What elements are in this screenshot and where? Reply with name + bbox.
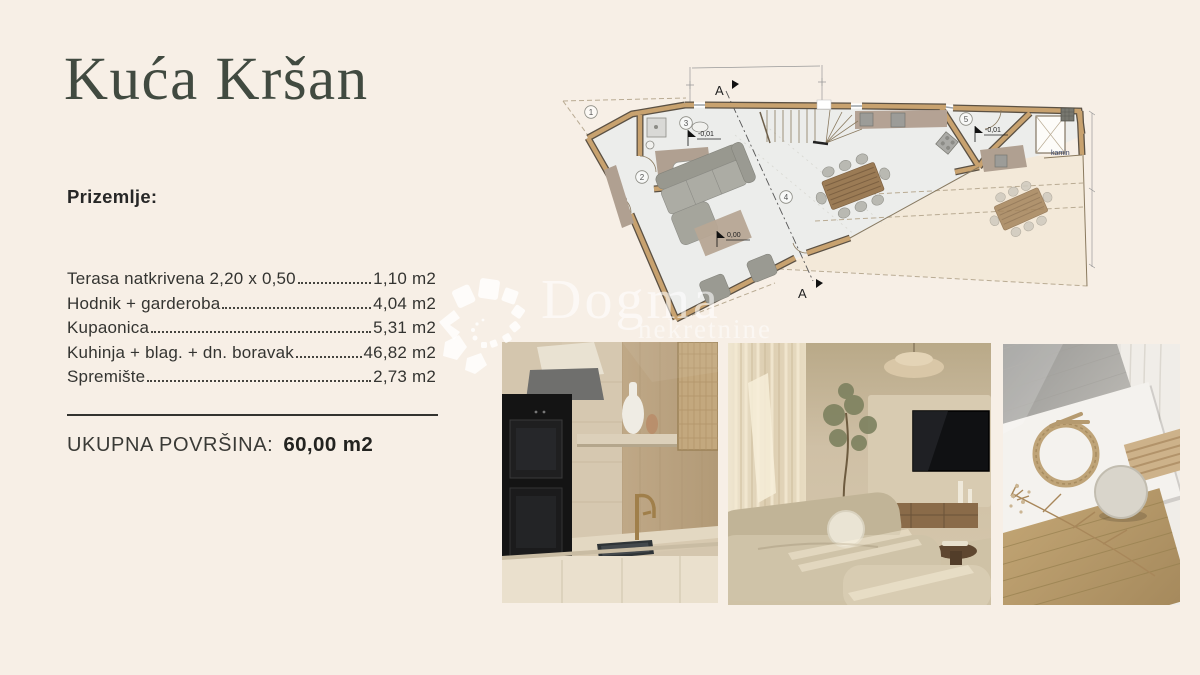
floor-plan: kamin 1 2 3 4 5 -0,01 0,00 -0,01 — [555, 55, 1095, 325]
room-number: 4 — [784, 193, 789, 202]
divider-line — [67, 414, 438, 416]
room-name: Spremište — [67, 366, 145, 387]
section-marker-bottom: A — [798, 286, 807, 301]
presentation-slide: Kuća Kršan Prizemlje: Terasa natkrivena … — [0, 0, 1200, 675]
floor-section-label: Prizemlje: — [67, 186, 157, 208]
room-area-row: Terasa natkrivena 2,20 x 0,50 1,10 m2 — [67, 265, 436, 289]
level-value: 0,00 — [727, 232, 741, 239]
dot-leader — [151, 331, 371, 333]
material-flatlay-photo — [1003, 344, 1180, 605]
total-area-label: UKUPNA POVRŠINA: — [67, 434, 273, 457]
room-area-value: 2,73 m2 — [373, 366, 436, 387]
room-name: Terasa natkrivena 2,20 x 0,50 — [67, 268, 296, 289]
total-area-row: UKUPNA POVRŠINA: 60,00 m2 — [67, 433, 373, 457]
room-area-value: 1,10 m2 — [373, 268, 436, 289]
page-title: Kuća Kršan — [64, 46, 369, 113]
wall-tag — [817, 100, 831, 109]
room-name: Kupaonica — [67, 317, 149, 338]
dot-leader — [147, 380, 371, 382]
room-number: 1 — [589, 108, 594, 117]
dot-leader — [296, 356, 362, 358]
room-area-value: 4,04 m2 — [373, 293, 436, 314]
level-value: -0,01 — [985, 127, 1001, 134]
room-area-row: Kupaonica 5,31 m2 — [67, 314, 436, 338]
room-area-row: Hodnik + garderoba 4,04 m2 — [67, 289, 436, 313]
total-area-value: 60,00 m2 — [283, 433, 373, 457]
dot-leader — [298, 282, 371, 284]
room-name: Kuhinja + blag. + dn. boravak — [67, 342, 294, 363]
section-marker-top: A — [715, 83, 724, 98]
room-area-value: 46,82 m2 — [364, 342, 436, 363]
level-value: -0,01 — [698, 131, 714, 138]
room-number: 5 — [964, 115, 969, 124]
fireplace-label: kamin — [1051, 150, 1070, 157]
room-areas-list: Terasa natkrivena 2,20 x 0,50 1,10 m2 Ho… — [67, 265, 436, 387]
room-area-value: 5,31 m2 — [373, 317, 436, 338]
room-name: Hodnik + garderoba — [67, 293, 220, 314]
room-area-row: Spremište 2,73 m2 — [67, 363, 436, 387]
room-area-row: Kuhinja + blag. + dn. boravak 46,82 m2 — [67, 338, 436, 362]
room-number: 3 — [684, 119, 689, 128]
dot-leader — [222, 307, 371, 309]
living-room-photo — [728, 343, 991, 605]
room-number: 2 — [640, 173, 645, 182]
kitchen-photo — [502, 342, 718, 603]
